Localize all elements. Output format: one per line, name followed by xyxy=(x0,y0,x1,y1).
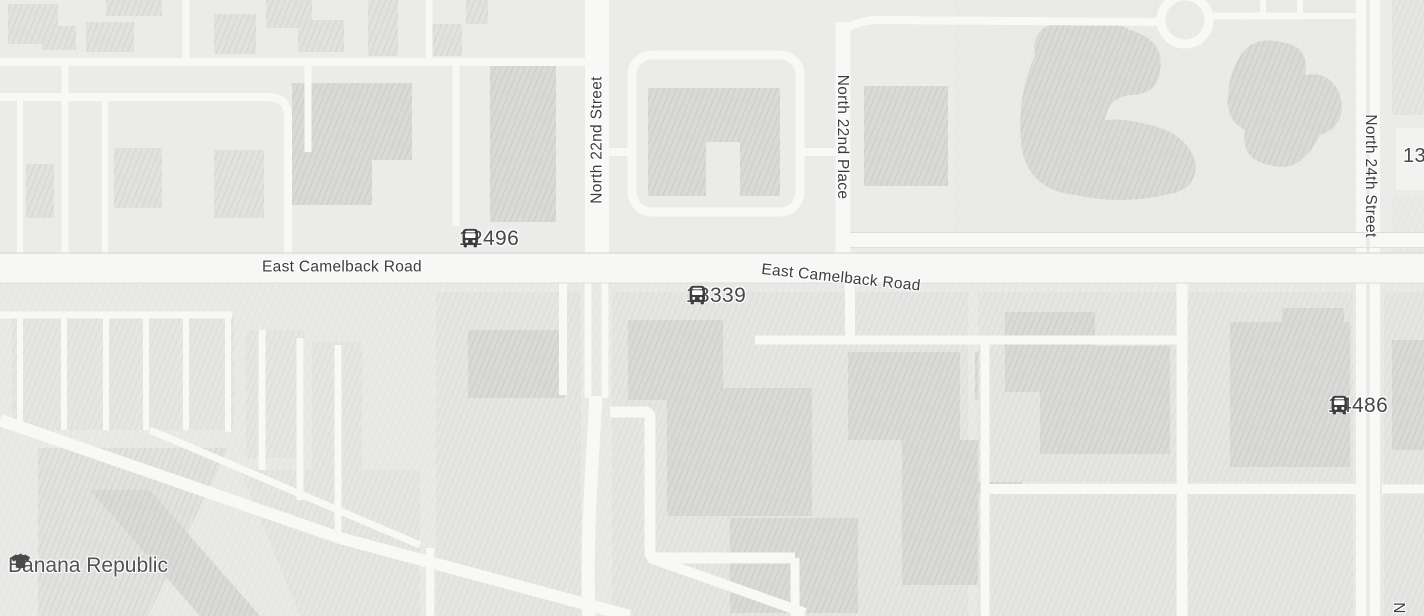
bus-stop-13339[interactable]: 13339 xyxy=(686,283,746,306)
road-label-east-camelback-west: East Camelback Road xyxy=(262,259,422,275)
poi-banana-republic[interactable]: Banana Republic xyxy=(8,551,168,576)
road-label-north-22nd-place: North 22nd Place xyxy=(834,75,850,200)
road-label-north-24th-street: North 24th Street xyxy=(1362,114,1378,237)
road-label-north-22nd-street: North 22nd Street xyxy=(589,76,605,203)
bus-stop-14486[interactable]: 14486 xyxy=(1328,393,1388,416)
bus-stop-12496[interactable]: 12496 xyxy=(459,226,519,249)
bus-stop-id-partial: 13 xyxy=(1403,146,1424,166)
road-label-partial-bottom: N xyxy=(1390,602,1406,614)
map-view[interactable]: East Camelback Road East Camelback Road … xyxy=(0,0,1424,616)
map-canvas xyxy=(0,0,1424,616)
